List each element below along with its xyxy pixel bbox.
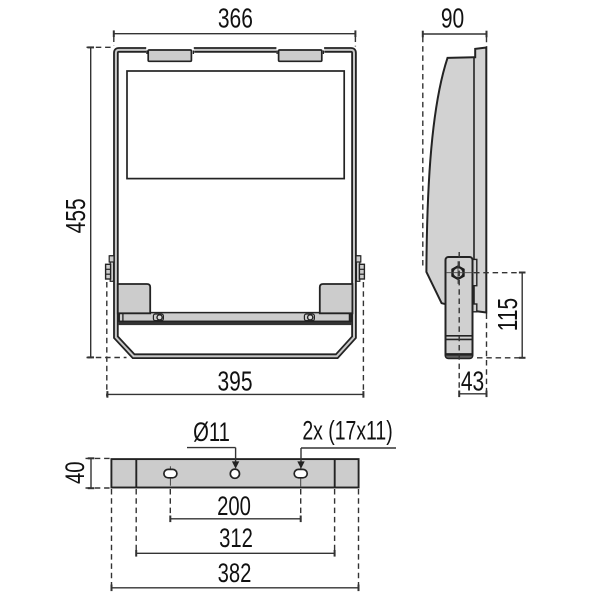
svg-text:382: 382 bbox=[218, 558, 252, 589]
svg-text:312: 312 bbox=[219, 523, 253, 554]
svg-text:455: 455 bbox=[61, 198, 92, 233]
svg-text:40: 40 bbox=[60, 462, 91, 485]
svg-text:90: 90 bbox=[441, 4, 464, 35]
svg-text:200: 200 bbox=[217, 491, 251, 522]
svg-text:2x (17x11): 2x (17x11) bbox=[302, 415, 392, 445]
svg-text:115: 115 bbox=[493, 298, 524, 331]
svg-text:395: 395 bbox=[217, 367, 252, 398]
svg-text:366: 366 bbox=[218, 4, 253, 35]
svg-text:43: 43 bbox=[461, 367, 484, 398]
svg-text:Ø11: Ø11 bbox=[193, 417, 230, 448]
